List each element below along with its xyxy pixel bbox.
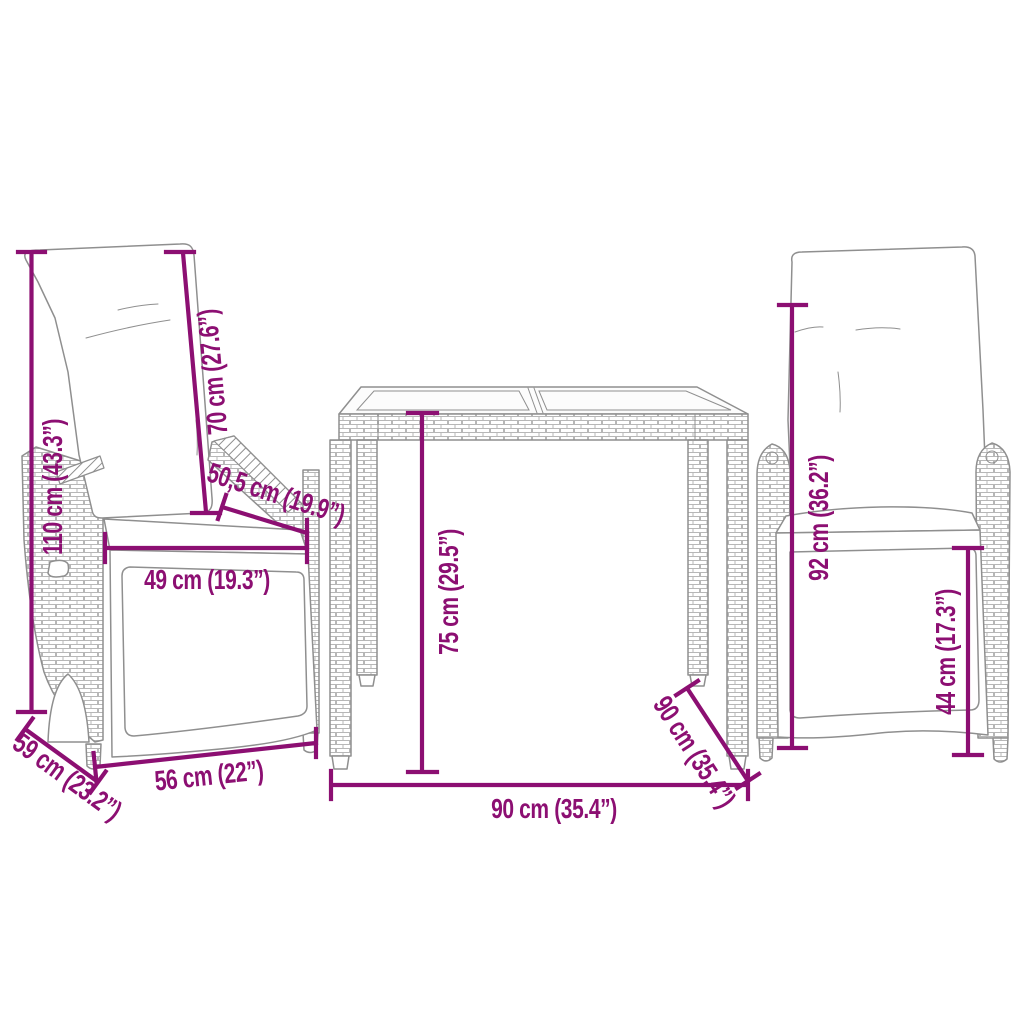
dimension-label-seat-height: 44 cm (17.3”) [932, 589, 960, 715]
furniture-line-art [0, 0, 1024, 1024]
right-chair-drawing [757, 247, 1010, 762]
dimension-label-right-chair-height: 92 cm (36.2”) [805, 455, 833, 581]
dimension-label-table-width: 90 cm (35.4”) [491, 795, 617, 823]
product-dimension-diagram: 110 cm (43.3”) 70 cm (27.6”) 50,5 cm (19… [0, 0, 1024, 1024]
dimension-label-table-height: 75 cm (29.5”) [435, 529, 463, 655]
dimension-label-seat-width: 49 cm (19.3”) [144, 566, 270, 594]
dimension-label-left-chair-total-height: 110 cm (43.3”) [39, 419, 67, 555]
